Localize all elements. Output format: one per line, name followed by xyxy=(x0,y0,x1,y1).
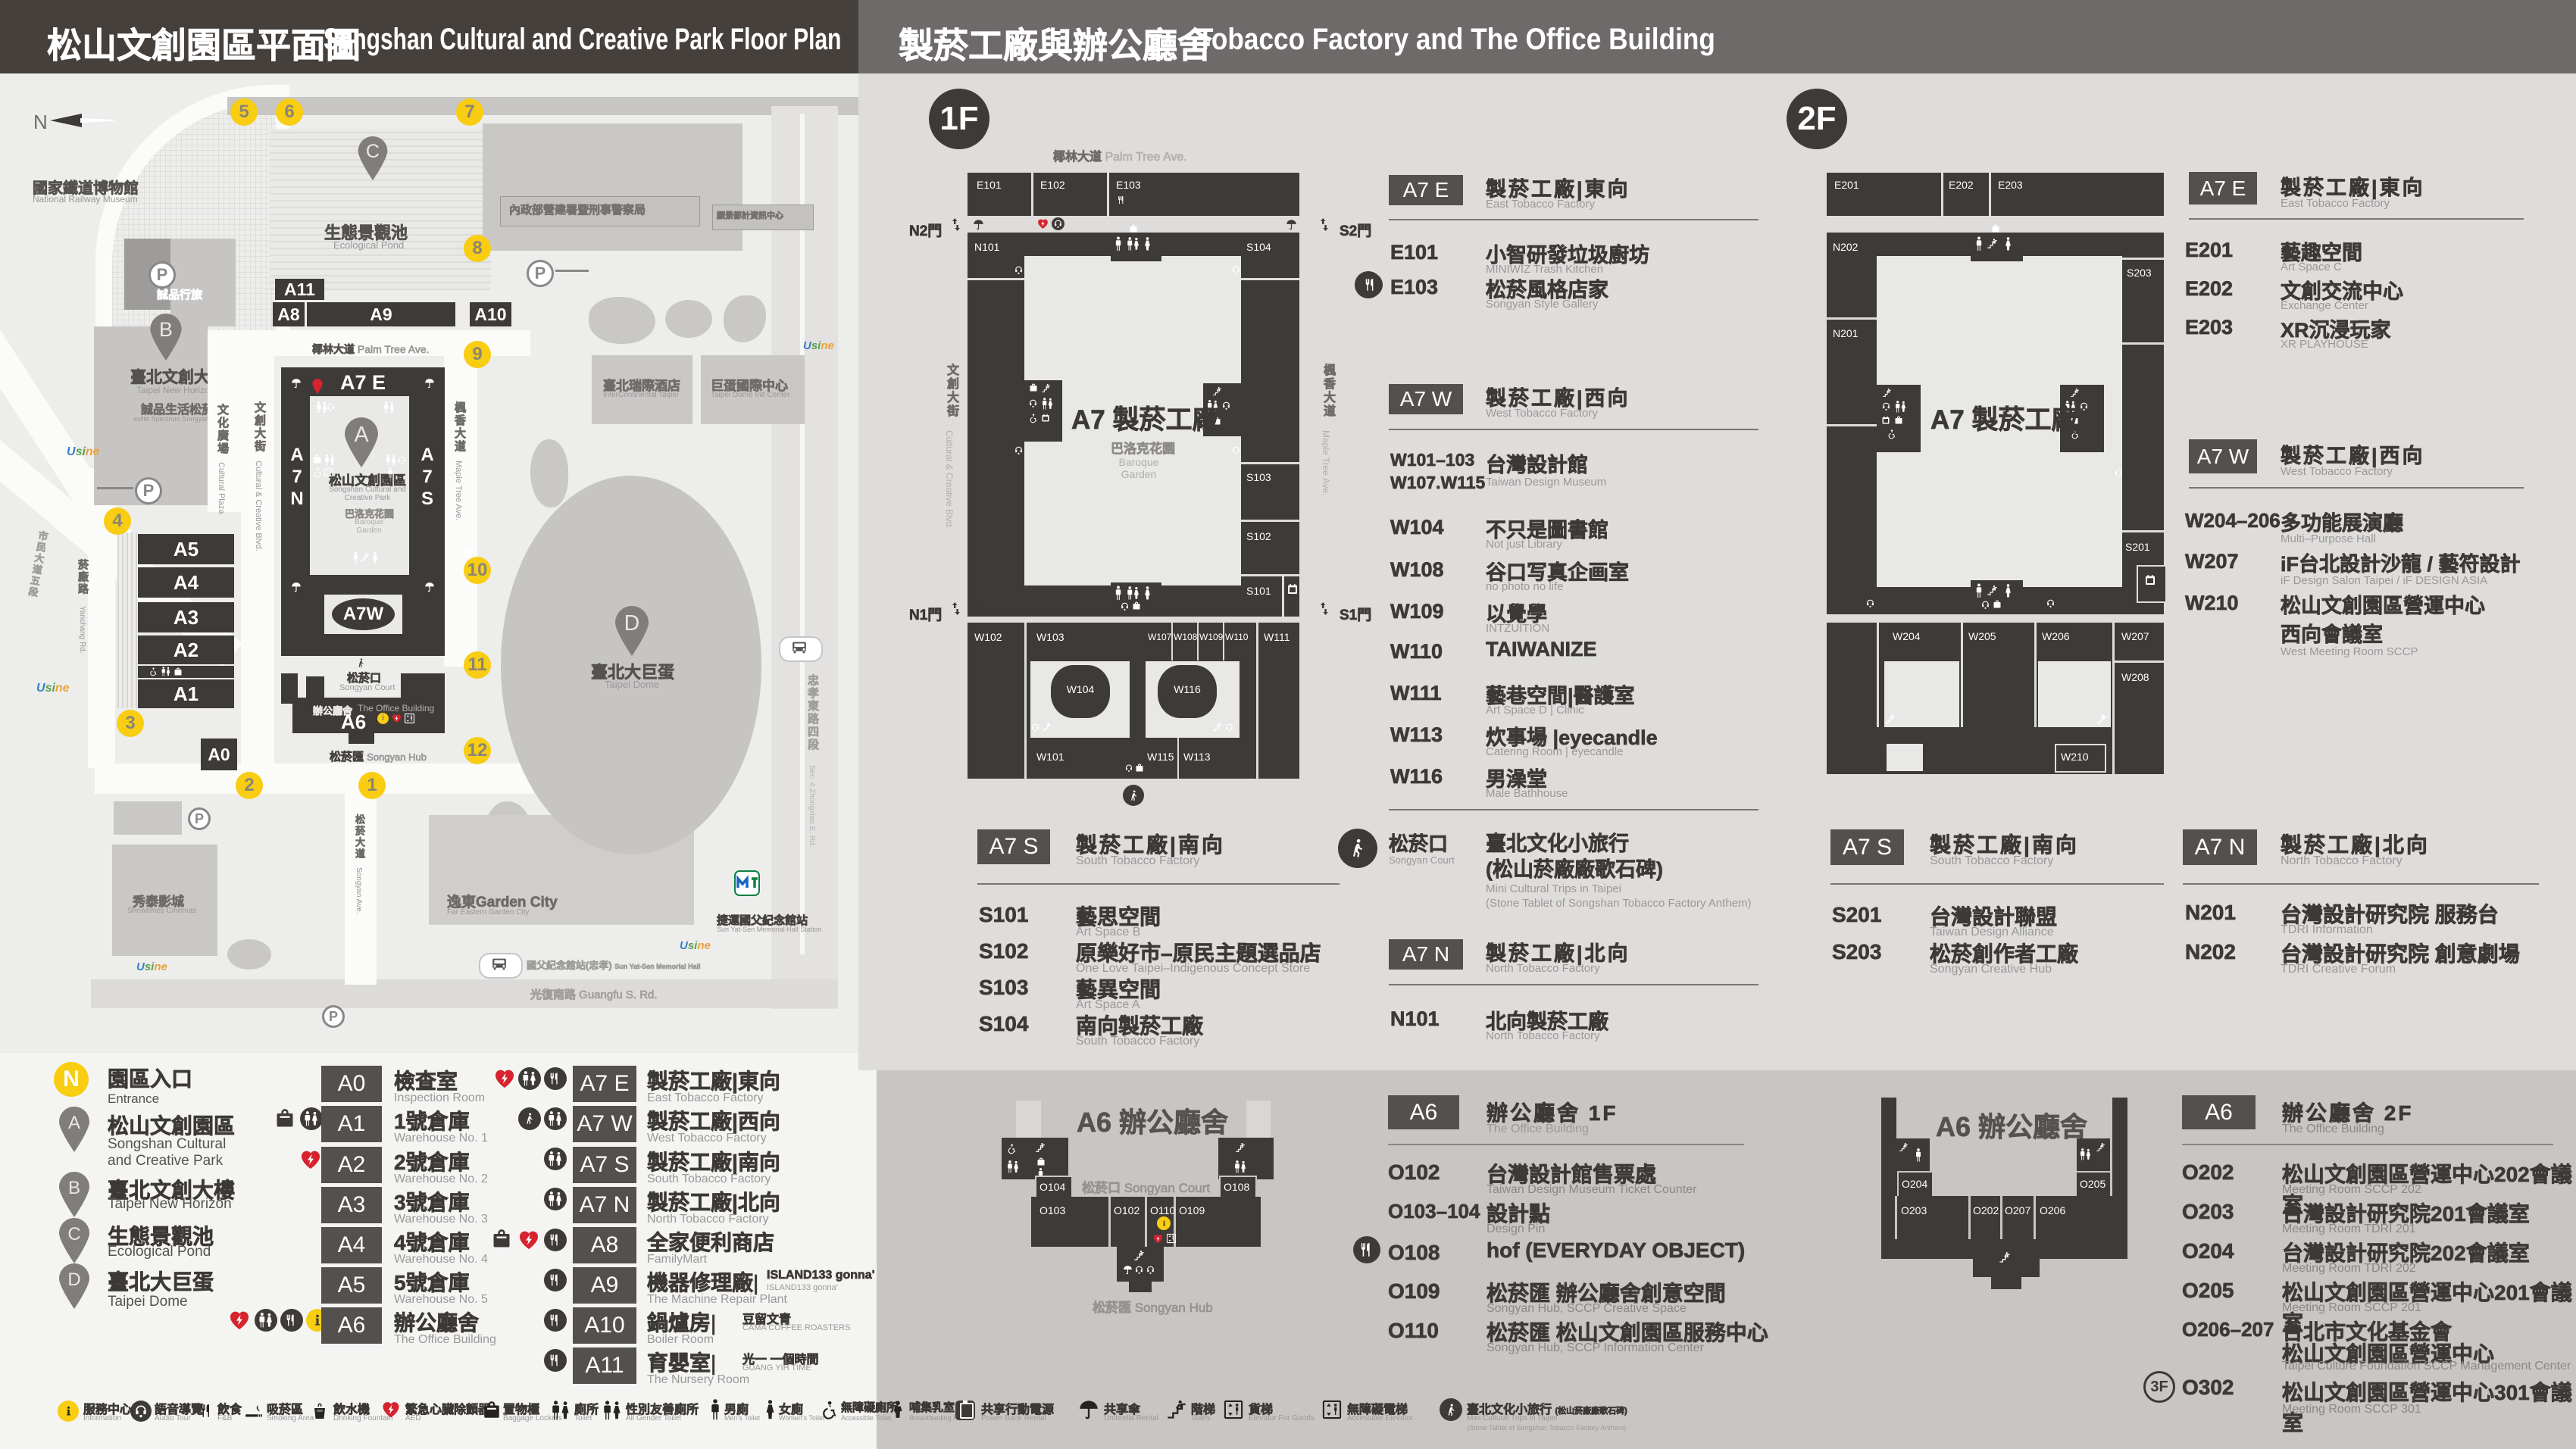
svg-text:A: A xyxy=(68,1113,80,1133)
svg-text:B: B xyxy=(159,318,173,341)
svg-text:B: B xyxy=(68,1178,80,1198)
svg-text:C: C xyxy=(366,141,380,162)
svg-text:D: D xyxy=(624,611,640,635)
svg-text:D: D xyxy=(67,1269,80,1290)
svg-text:C: C xyxy=(67,1224,80,1244)
svg-text:A: A xyxy=(354,423,369,447)
